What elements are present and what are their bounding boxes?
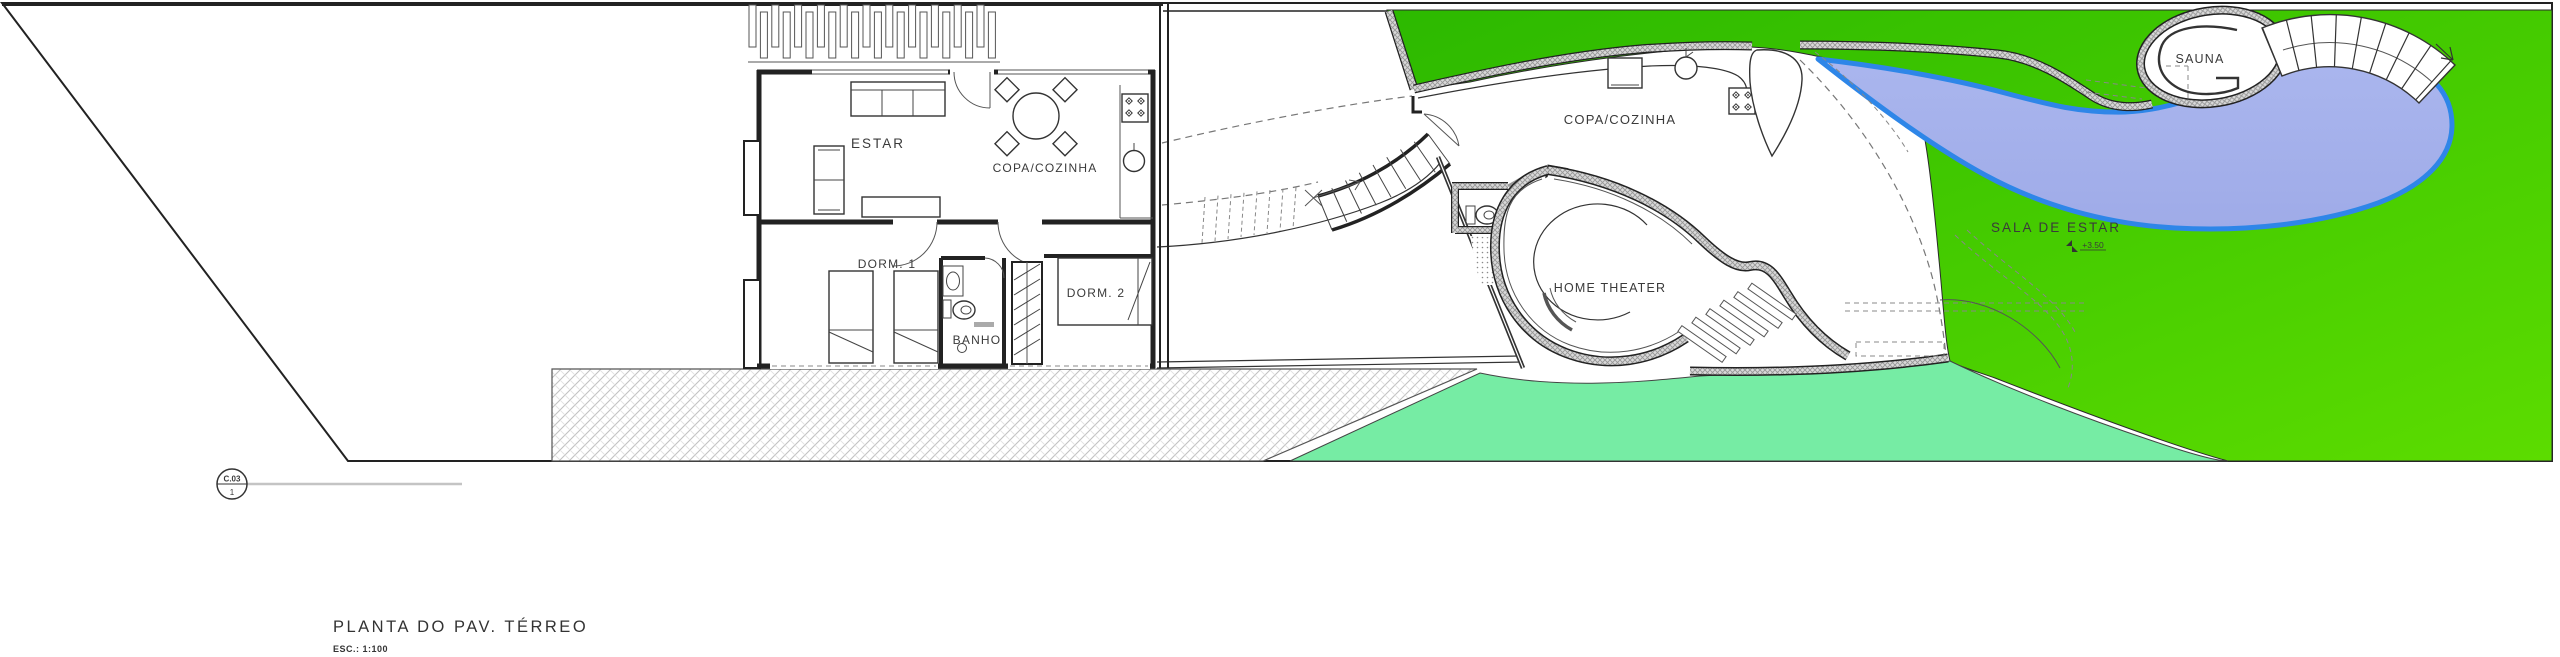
callout-sheet: 1: [230, 488, 235, 497]
callout-code: C.03: [224, 475, 241, 484]
annex-copa-label: COPA/COZINHA: [993, 161, 1098, 175]
fridge: [1608, 58, 1642, 88]
dorm2-label: DORM. 2: [1067, 286, 1125, 300]
floor-plan-canvas: ESTAR COPA/COZINHA DORM. 1 DORM. 2 BANHO…: [0, 0, 2560, 657]
floor-plan-page: ESTAR COPA/COZINHA DORM. 1 DORM. 2 BANHO…: [0, 0, 2560, 657]
main-copa-label: COPA/COZINHA: [1564, 112, 1676, 127]
home-theater-label: HOME THEATER: [1554, 281, 1667, 295]
plan-title: PLANTA DO PAV. TÉRREO: [333, 617, 588, 636]
sala-level-value: +3.50: [2082, 240, 2104, 250]
sala-label: SALA DE ESTAR: [1991, 220, 2121, 235]
banho-label: BANHO: [953, 333, 1002, 347]
cooktop-sink: [1675, 57, 1697, 79]
estar-label: ESTAR: [851, 136, 905, 151]
plan-scale: ESC.: 1:100: [333, 644, 388, 654]
sauna-label: SAUNA: [2175, 52, 2224, 66]
section-callout: C.03 1: [217, 469, 462, 499]
title-block: PLANTA DO PAV. TÉRREO ESC.: 1:100: [333, 617, 588, 654]
dorm1-label: DORM. 1: [858, 257, 916, 271]
